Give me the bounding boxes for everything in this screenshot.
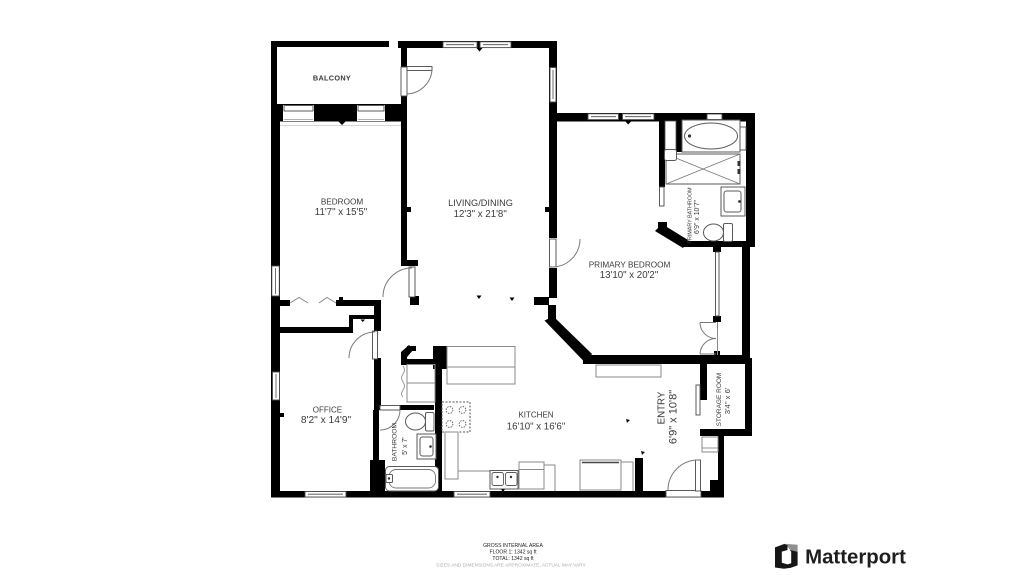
svg-text:8'2" x 14'9": 8'2" x 14'9" <box>301 415 352 426</box>
svg-text:Matterport: Matterport <box>805 547 906 569</box>
svg-text:BALCONY: BALCONY <box>313 74 351 83</box>
svg-text:12'3" x 21'8": 12'3" x 21'8" <box>454 209 508 220</box>
svg-text:OFFICE: OFFICE <box>313 406 342 415</box>
svg-text:LIVING/DINING: LIVING/DINING <box>448 198 513 208</box>
svg-text:6'9" x 10'8": 6'9" x 10'8" <box>668 390 680 444</box>
svg-text:GROSS INTERNAL AREA: GROSS INTERNAL AREA <box>483 543 543 549</box>
svg-text:FLOOR 1: 1342 sq ft: FLOOR 1: 1342 sq ft <box>490 550 538 556</box>
svg-text:TOTAL: 1342 sq ft: TOTAL: 1342 sq ft <box>492 556 534 562</box>
svg-text:BEDROOM: BEDROOM <box>321 198 363 207</box>
svg-text:13'10" x 20'2": 13'10" x 20'2" <box>600 270 659 281</box>
svg-text:16'10" x 16'6": 16'10" x 16'6" <box>507 421 566 432</box>
svg-text:3'4" x 6': 3'4" x 6' <box>723 387 732 414</box>
svg-text:PRIMARY BEDROOM: PRIMARY BEDROOM <box>589 261 671 270</box>
svg-text:ENTRY: ENTRY <box>657 391 668 424</box>
svg-text:KITCHEN: KITCHEN <box>518 410 553 419</box>
svg-text:6'9" x 10'7": 6'9" x 10'7" <box>694 199 701 234</box>
svg-text:SIZES AND DIMENSIONS ARE APPRO: SIZES AND DIMENSIONS ARE APPROXIMATE, AC… <box>436 562 586 568</box>
svg-text:STORAGE ROOM: STORAGE ROOM <box>716 373 723 427</box>
svg-text:PRIMARY BATHROOM: PRIMARY BATHROOM <box>688 187 694 244</box>
svg-text:11'7" x 15'5": 11'7" x 15'5" <box>315 207 368 218</box>
svg-text:5' x 7': 5' x 7' <box>402 437 409 455</box>
svg-text:BATHROOM: BATHROOM <box>392 423 399 462</box>
